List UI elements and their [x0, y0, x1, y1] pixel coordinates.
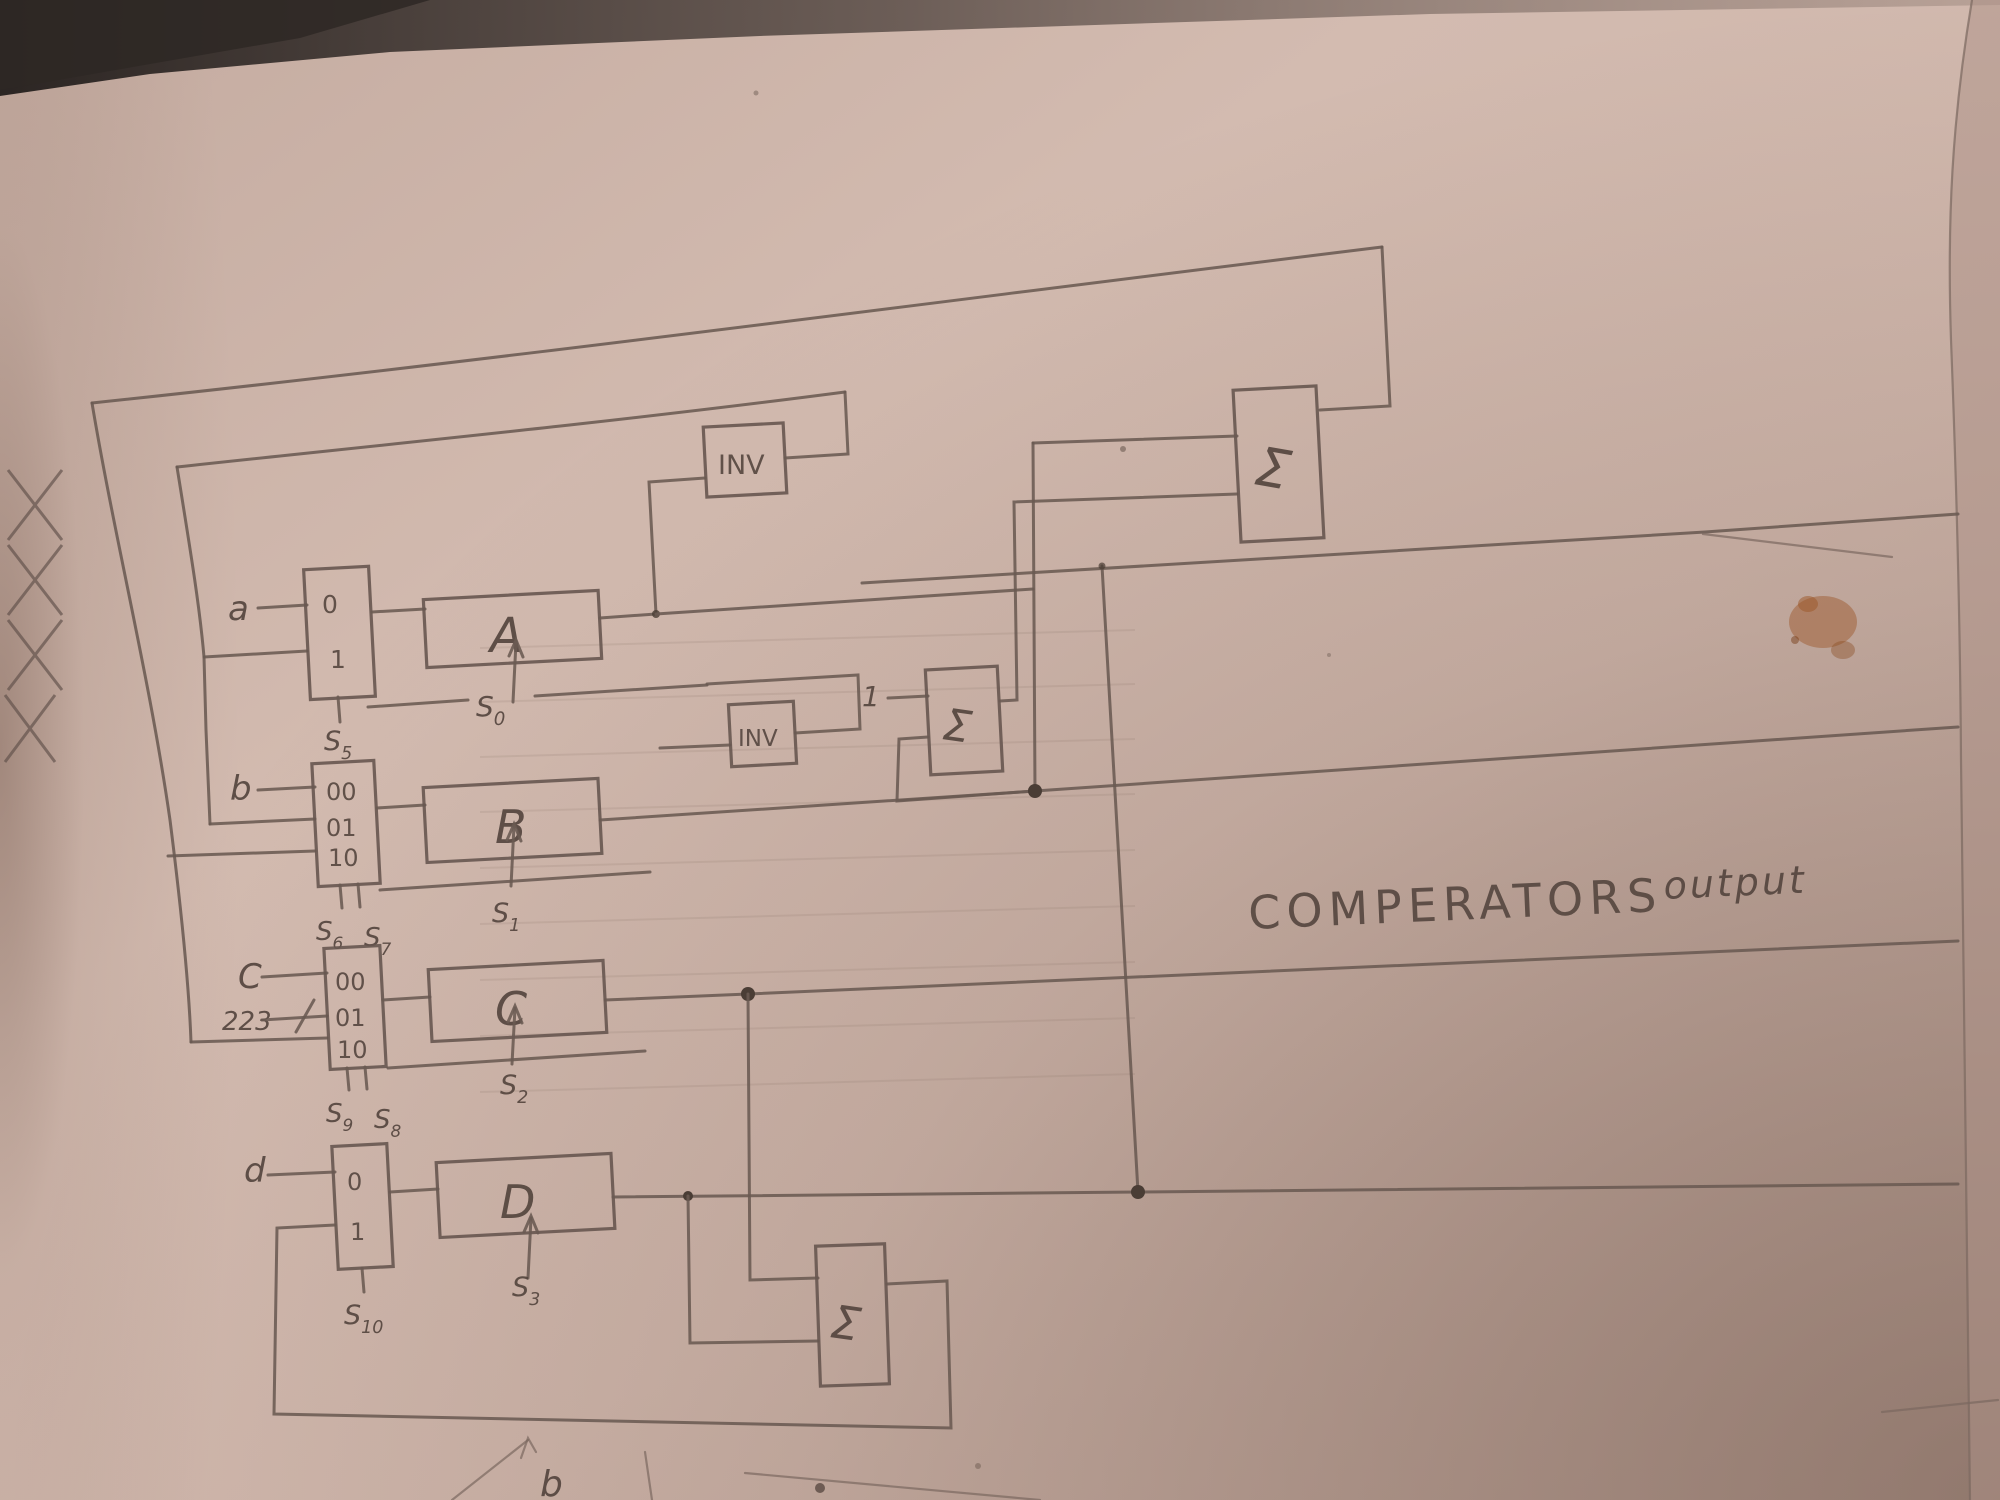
- junction-dot-line1: [1099, 563, 1106, 570]
- input-d-label: d: [244, 1151, 266, 1191]
- constant-one-label: 1: [862, 680, 880, 713]
- junction-dot-line2: [1028, 784, 1042, 798]
- block-a-label: A: [487, 608, 523, 664]
- input-c-label: C: [238, 957, 262, 997]
- mux-d-option-0: 0: [347, 1168, 362, 1196]
- mux-c-option-01: 01: [335, 1004, 366, 1032]
- mux-c-select-stem-1: [347, 1068, 349, 1090]
- block-c-label: C: [495, 982, 527, 1036]
- mux-d-option-1: 1: [350, 1218, 365, 1246]
- junction-dot-line4-right: [1131, 1185, 1145, 1199]
- mux-b-option-10: 10: [328, 844, 359, 872]
- mux-c-option-10: 10: [337, 1036, 368, 1064]
- mux-c-option-00: 00: [335, 968, 366, 996]
- schematic-canvas: INV a 0 1 S5 A S0 b 00 01 10 S6 S7: [0, 0, 2000, 1500]
- mux-a-select-stem: [338, 697, 340, 722]
- photo-of-hand-drawn-schematic: INV a 0 1 S5 A S0 b 00 01 10 S6 S7: [0, 0, 2000, 1500]
- inverter-2-label: INV: [738, 726, 778, 752]
- input-a-label: a: [228, 589, 249, 629]
- wire-one-to-adder-mid: [888, 696, 928, 698]
- vertical-bus-1: [1033, 443, 1035, 791]
- mux-b-option-00: 00: [326, 778, 357, 806]
- input-b-label: b: [230, 769, 252, 809]
- annotation-word2: output: [1663, 858, 1808, 908]
- mux-a-option-0: 0: [322, 590, 338, 619]
- mux-b-select-stem-2: [358, 884, 360, 907]
- sketch-letter-b: b: [540, 1464, 563, 1500]
- mux-d-select-stem: [362, 1268, 364, 1292]
- left-edge-shade: [0, 0, 240, 1500]
- mux-b-option-01: 01: [326, 814, 357, 842]
- mux-a-option-1: 1: [330, 645, 346, 674]
- inverter-1-label: INV: [718, 450, 765, 481]
- bottom-right-vignette: [0, 0, 2000, 1500]
- mux-b-select-stem-1: [340, 885, 342, 908]
- sketch-dot: [815, 1483, 825, 1493]
- input-c-bus-width: 223: [222, 1007, 272, 1037]
- block-b-label: B: [495, 800, 527, 854]
- mux-c-select-stem-2: [365, 1067, 367, 1089]
